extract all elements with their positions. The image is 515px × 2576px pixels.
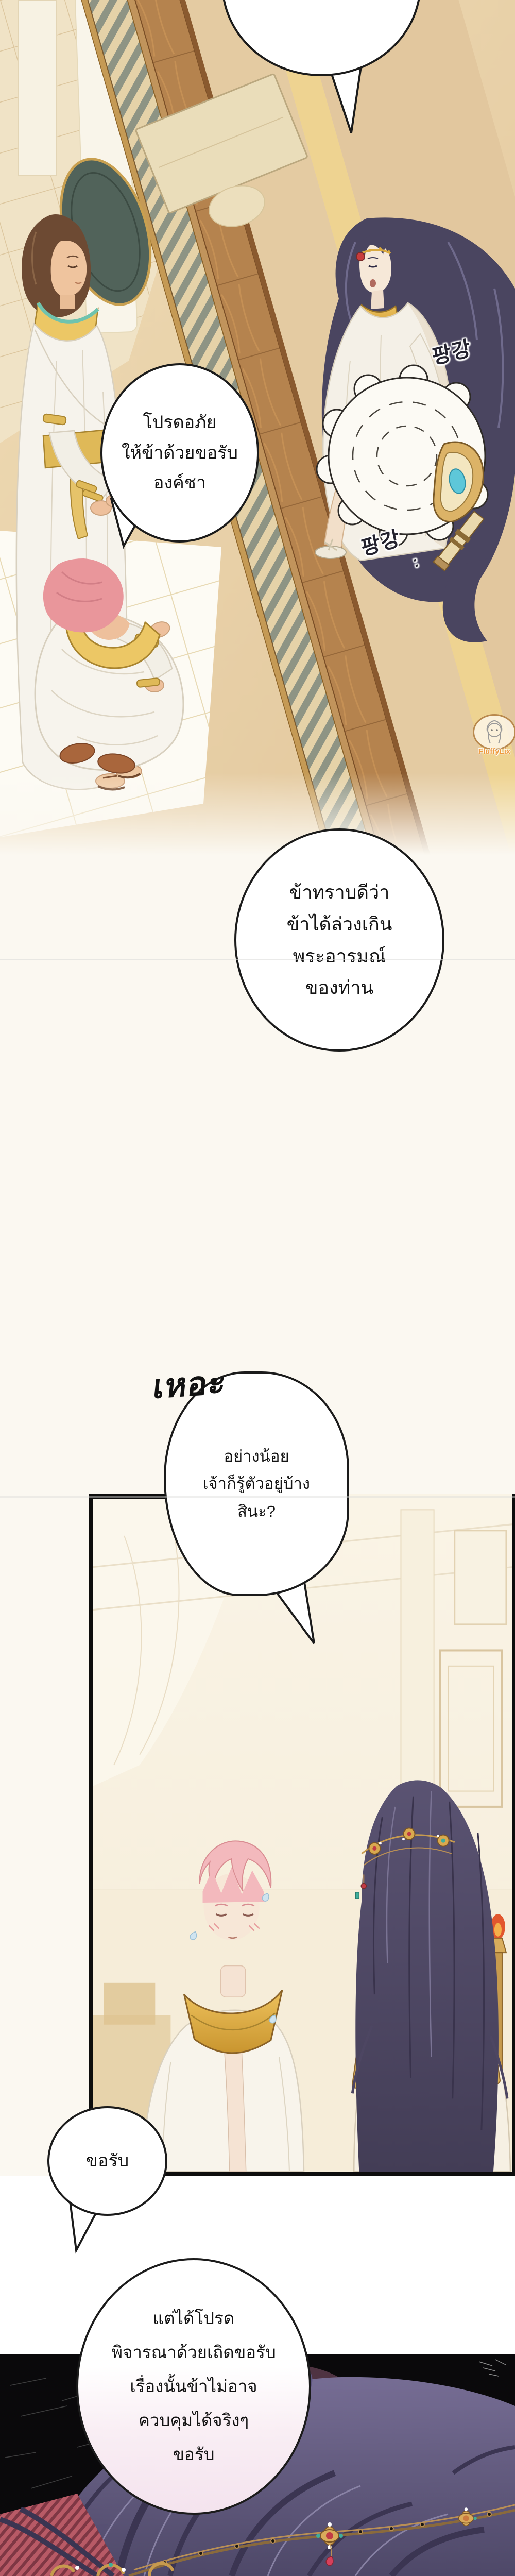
- speech-bubble-5: แต่ได้โปรด พิจารณาด้วยเถิดขอรับ เรื่องนั…: [76, 2258, 311, 2515]
- speech-bubble-4: ขอรับ: [47, 2106, 167, 2216]
- webtoon-page: FluffyLix 팡강 팡강 : โปรดอภัย ให้ข้าด้วยขอร…: [0, 0, 515, 2576]
- speech-bubble-2: ข้าทราบดีว่า ข้าได้ล่วงเกิน พระอารมณ์ ขอ…: [234, 828, 444, 1052]
- laugh-text: เหอะ: [150, 1355, 229, 1413]
- watermark-label: FluffyLix: [466, 747, 515, 756]
- speech-bubble-1: โปรดอภัย ให้ข้าด้วยขอรับ องค์ชา: [100, 363, 259, 543]
- watermark: FluffyLix: [466, 714, 515, 756]
- watermark-chibi-icon: [473, 714, 515, 750]
- white-column: [19, 0, 57, 175]
- scene-1-illustration: [0, 0, 515, 855]
- slice-seam-line-2: [0, 1496, 515, 1498]
- wall-frame-upper: [455, 1531, 506, 1624]
- scene-fade: [0, 773, 515, 855]
- slice-seam-line: [0, 959, 515, 960]
